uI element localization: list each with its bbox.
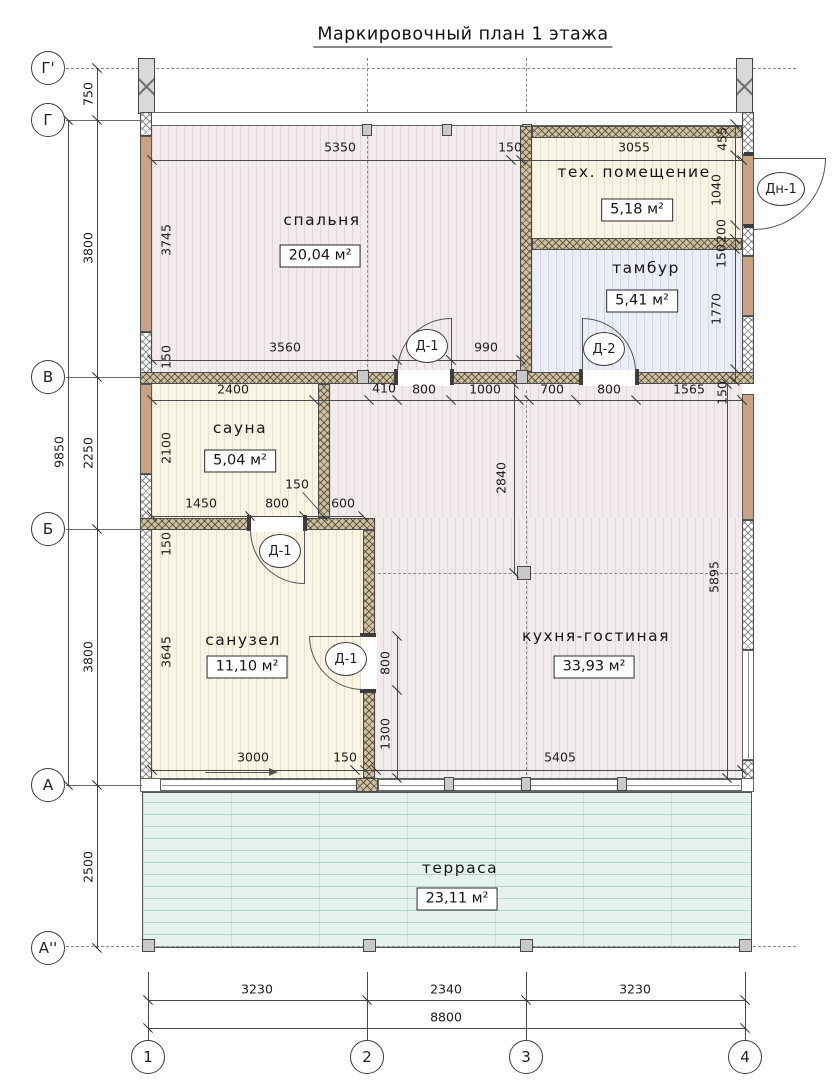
- dim-text: 990: [474, 340, 498, 355]
- axis-col-2: 2: [350, 1040, 384, 1074]
- dim-text: 3745: [159, 224, 174, 256]
- door-leaf-d1s: [309, 636, 363, 637]
- kitchen-center-line: [378, 573, 738, 574]
- dim-text: 2840: [494, 462, 509, 494]
- kitchen-column: [517, 566, 531, 580]
- post-top-2: [442, 124, 452, 136]
- window-bathroom-bottom: [160, 779, 358, 791]
- dim-line-left-segments: [97, 68, 98, 948]
- area-tambour: 5,41 м²: [606, 290, 678, 313]
- terrace-post-3: [520, 939, 533, 952]
- dim-text: 9850: [52, 436, 67, 468]
- dim-line-left-overall: [68, 120, 69, 785]
- axis-conn-b: [66, 529, 142, 530]
- wall-sauna-right: [318, 384, 330, 518]
- label-tech: тех. помещение: [557, 163, 710, 181]
- dim-line-bottom-inner: [152, 770, 742, 771]
- area-bedroom: 20,04 м²: [280, 245, 361, 268]
- dim-text: 700: [540, 382, 564, 397]
- label-sauna: сауна: [213, 419, 267, 437]
- area-terrace: 23,11 м²: [417, 888, 498, 911]
- dim-text: 3000: [237, 750, 269, 765]
- dim-text: 2340: [430, 982, 462, 997]
- axis-row-a-second: А'': [31, 931, 65, 965]
- axis-row-v: В: [31, 360, 65, 394]
- dim-text: 800: [412, 382, 436, 397]
- dim-text: 3230: [619, 982, 651, 997]
- axis-conn-g: [66, 120, 142, 121]
- axis-row-g-prime: Г': [31, 51, 65, 85]
- dim-text: 150: [159, 532, 174, 556]
- axis-row-b: Б: [31, 512, 65, 546]
- plan-title: Маркировочный план 1 этажа: [313, 25, 612, 48]
- wall-right-corner: [742, 112, 754, 155]
- axis-line-g-prime: [66, 68, 796, 69]
- axis-row-a: А: [31, 768, 65, 802]
- post-top-1: [362, 124, 372, 136]
- jamb: [744, 224, 754, 228]
- dim-text: 150: [285, 477, 309, 492]
- dim-text: 600: [331, 496, 355, 511]
- dim-text: 800: [265, 496, 289, 511]
- door-leaf-dn1: [754, 158, 826, 159]
- area-sauna: 5,04 м²: [204, 450, 276, 473]
- label-bathroom: санузел: [205, 631, 281, 649]
- dim-text: 2100: [159, 432, 174, 464]
- dim-line-below-v: [152, 400, 742, 401]
- dim-line-above-v: [152, 360, 521, 361]
- axis-col-3: 3: [509, 1040, 543, 1074]
- dim-text: 410: [372, 381, 396, 396]
- dim-text: 150: [498, 140, 522, 155]
- door-label-d1-s: Д-1: [325, 642, 367, 676]
- axis-conn-v: [66, 377, 142, 378]
- axis-line-3-kitchen: [526, 390, 527, 775]
- dim-text: 455: [715, 127, 730, 151]
- axis-line-2-top: [367, 58, 368, 112]
- wall-right-seg3: [742, 520, 754, 650]
- post-bottom-1: [444, 777, 454, 791]
- axis-conn-a: [66, 785, 142, 786]
- dim-text: 3800: [81, 641, 96, 673]
- post-bottom-2: [521, 777, 531, 791]
- label-tambour: тамбур: [612, 259, 680, 277]
- door-leaf-d1b: [304, 530, 305, 584]
- terrace-post-1: [142, 939, 155, 952]
- floor-plan: Маркировочный план 1 этажа: [0, 0, 832, 1080]
- dim-text: 5895: [707, 561, 722, 593]
- area-tech: 5,18 м²: [601, 199, 673, 222]
- dim-line-top: [152, 160, 742, 161]
- dim-text: 200: [714, 219, 729, 243]
- axis-row-g: Г: [31, 103, 65, 137]
- area-bathroom: 11,10 м²: [207, 656, 288, 679]
- wall-tech-tambour: [532, 238, 742, 250]
- axis-line-3-top: [526, 58, 527, 112]
- wall-bottom-seg: [356, 778, 378, 792]
- dim-text: 3560: [269, 340, 301, 355]
- dim-text: 2400: [217, 382, 249, 397]
- axis-col-1: 1: [131, 1040, 165, 1074]
- dim-line-2840: [514, 384, 515, 573]
- post-v-1: [357, 370, 369, 384]
- dim-text: 800: [597, 382, 621, 397]
- terrace-post-4: [739, 939, 752, 952]
- jamb: [744, 152, 754, 156]
- door-label-d2: Д-2: [583, 332, 625, 366]
- dim-text: 750: [81, 82, 96, 106]
- post-v-2: [516, 370, 528, 384]
- label-kitchen: кухня-гостиная: [522, 627, 670, 645]
- axis-line-2-bedroom: [367, 126, 368, 372]
- dim-text: 5350: [324, 140, 356, 155]
- room-kitchen-upper: [330, 384, 742, 518]
- axis-conn-3: [526, 972, 527, 1040]
- axis-line-a-second: [66, 946, 796, 947]
- door-label-dn1: Дн-1: [757, 172, 805, 206]
- post-top-right: [736, 58, 753, 114]
- label-bedroom: спальня: [283, 211, 360, 229]
- dim-text: 1300: [378, 718, 393, 750]
- dim-line-above-b: [152, 516, 363, 517]
- post-top-left: [138, 58, 155, 114]
- dim-text: 150: [715, 381, 730, 405]
- dim-text: 5405: [544, 750, 576, 765]
- dim-text: 3230: [241, 982, 273, 997]
- label-terrace: терраса: [422, 859, 498, 877]
- window-kitchen-bottom: [378, 779, 742, 791]
- dim-text: 150: [714, 244, 729, 268]
- door-leaf-d1v: [451, 318, 452, 372]
- dim-text: 3800: [81, 232, 96, 264]
- wall-left-corner: [140, 112, 152, 136]
- dim-text: 1450: [185, 496, 217, 511]
- slope-arrow-icon: [205, 772, 269, 773]
- door-label-d1-v: Д-1: [406, 329, 448, 363]
- dim-text: 1040: [709, 174, 724, 206]
- dim-line-bottom-segments: [148, 1000, 745, 1001]
- dim-text: 2500: [81, 851, 96, 883]
- dim-text: 1000: [469, 382, 501, 397]
- terrace-post-2: [363, 939, 376, 952]
- dim-text: 150: [159, 345, 174, 369]
- dim-text: 1770: [709, 293, 724, 325]
- entry-door-panel: [742, 155, 754, 225]
- dim-text: 150: [333, 750, 357, 765]
- room-kitchen-lower: [375, 518, 742, 778]
- dim-text: 3645: [159, 636, 174, 668]
- dim-line-right-top: [735, 124, 736, 381]
- dim-text: 1565: [673, 382, 705, 397]
- dim-text: 8800: [430, 1010, 462, 1025]
- dim-text: 800: [378, 651, 393, 675]
- axis-col-4: 4: [728, 1040, 762, 1074]
- dim-line-5895: [727, 384, 728, 778]
- window-bedroom-left: [140, 136, 152, 332]
- window-tambour-right: [742, 256, 754, 316]
- window-kitchen-right-2: [742, 650, 754, 760]
- dim-line-bath-door: [397, 636, 398, 778]
- dim-text: 2250: [81, 437, 96, 469]
- window-kitchen-right-1: [742, 394, 754, 520]
- post-bottom-3: [617, 777, 627, 791]
- axis-conn-2: [367, 972, 368, 1040]
- area-kitchen: 33,93 м²: [554, 656, 635, 679]
- door-label-d1-b: Д-1: [259, 534, 301, 568]
- wall-bedroom-tech: [520, 126, 532, 372]
- wall-right-seg1: [742, 225, 754, 256]
- dim-line-bottom-overall: [148, 1028, 745, 1029]
- dim-text: 3055: [618, 140, 650, 155]
- wall-top-tech: [532, 126, 742, 138]
